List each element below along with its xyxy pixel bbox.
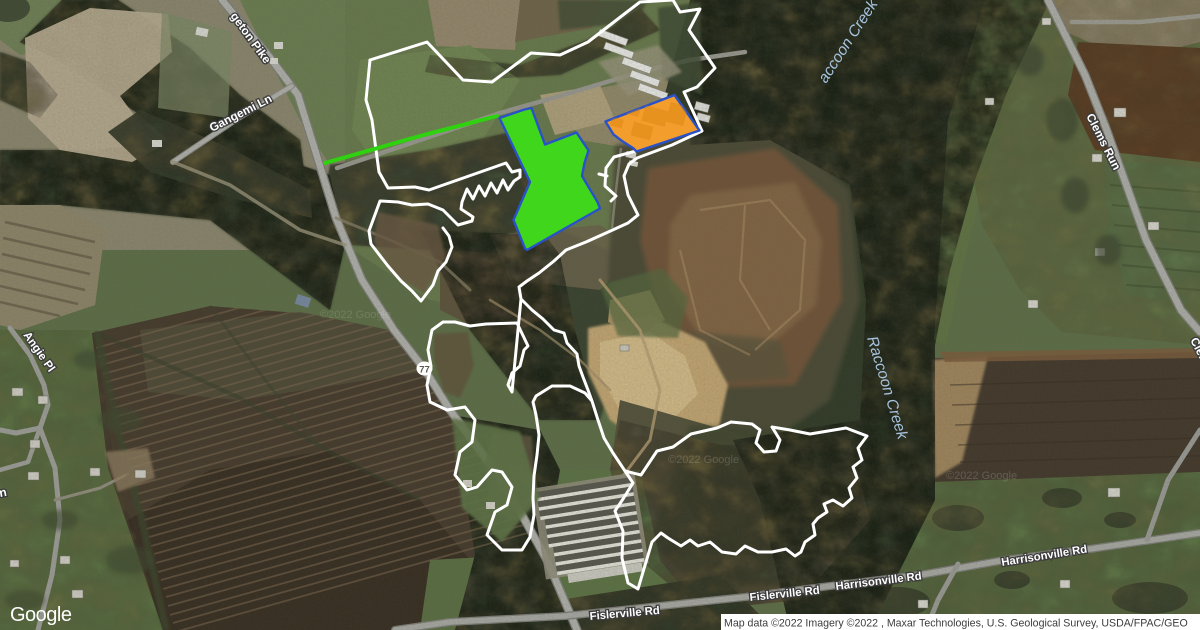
svg-text:Map data ©2022 Imagery ©2022 ,: Map data ©2022 Imagery ©2022 , Maxar Tec… xyxy=(724,618,1188,630)
svg-text:Google: Google xyxy=(10,604,72,626)
svg-text:©2022 Google: ©2022 Google xyxy=(668,454,739,466)
svg-text:©2022 Google: ©2022 Google xyxy=(946,470,1017,482)
svg-text:©2022 Google: ©2022 Google xyxy=(320,309,391,321)
svg-text:77: 77 xyxy=(419,365,430,376)
